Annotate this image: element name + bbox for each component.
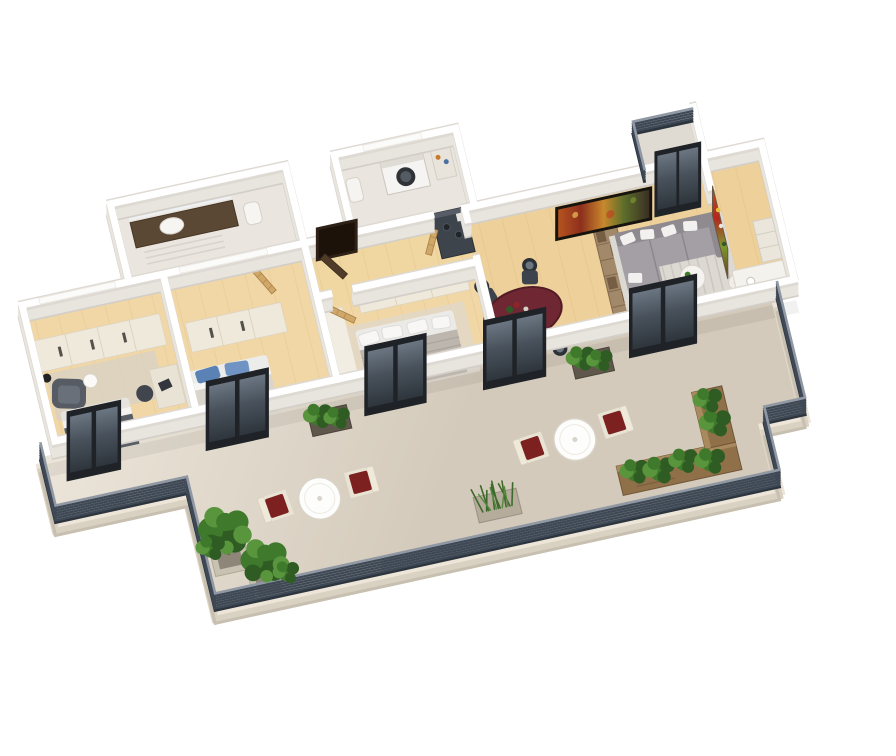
balcony-door-3	[364, 333, 426, 417]
armchair	[52, 378, 86, 409]
floorplan-scene	[0, 0, 896, 756]
balcony-door-4	[483, 307, 546, 391]
balcony-door-2	[206, 367, 269, 451]
rear-balcony-door	[654, 141, 701, 217]
floorplan-render	[0, 0, 896, 756]
balcony-door-1	[67, 400, 122, 482]
balcony-door-5	[629, 274, 697, 359]
